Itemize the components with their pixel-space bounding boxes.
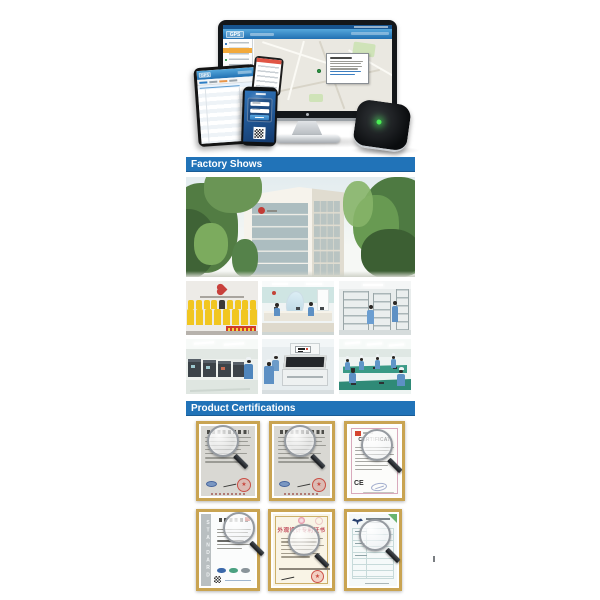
assembly-worker-front: [397, 367, 405, 386]
ce-mark: CE: [354, 480, 364, 487]
certificate-title-text: [280, 430, 324, 434]
production-machine: [233, 362, 244, 377]
testing-machine-lid: [284, 355, 327, 369]
office-wall-logo: [272, 291, 276, 295]
red-seal: ★: [237, 478, 251, 492]
testing-machine-body: [282, 369, 328, 386]
tree-bullet-blue: [225, 43, 227, 45]
certificate-test-report: [344, 509, 402, 591]
warehouse-worker: [367, 305, 374, 324]
certificate-title-text: [207, 430, 249, 434]
office-floor: [262, 332, 334, 335]
standard-band: STANDARD: [201, 514, 211, 586]
certificate-text-lines: [201, 437, 255, 463]
certificate-ce: CERTIFICAT CE: [344, 421, 405, 501]
gps-tracker: [352, 98, 412, 153]
tree-left-bright: [194, 223, 228, 265]
patent-title: 外观设计专利证书: [273, 526, 330, 534]
tablet-header-links: [238, 70, 252, 74]
certificate-iso: STANDARD: [196, 509, 260, 591]
footer-text: [211, 493, 246, 495]
photo-team: [186, 281, 258, 335]
certifier-name: [363, 432, 373, 434]
floor: [186, 331, 258, 335]
qr-code: [253, 127, 265, 139]
blue-stamp: [206, 481, 217, 487]
shelving-rack: [343, 291, 369, 331]
map-marker: [317, 69, 321, 73]
qr-code-small: [214, 576, 221, 583]
testing-floor: [262, 390, 334, 394]
company-logo-heart: [218, 285, 228, 295]
page: GPS: [0, 0, 600, 600]
certificate-registration-1: ★: [196, 421, 260, 501]
footer-line: [225, 580, 251, 581]
menu-bar: [250, 33, 274, 36]
building-windows-side: [314, 201, 340, 275]
photo-machines: [186, 339, 258, 394]
report-table: [352, 528, 394, 579]
production-machine: [188, 359, 201, 377]
tree-right-light: [343, 181, 373, 227]
testing-operator: [264, 359, 274, 384]
photo-assembly: [339, 339, 411, 394]
section-title-certifications: Product Certifications: [191, 403, 295, 414]
report-title: [366, 518, 390, 520]
certificate-text-lines: [274, 437, 330, 463]
office-worker: [274, 303, 280, 316]
phone-login-form: [247, 98, 273, 123]
photo-testing: [262, 339, 334, 394]
assembly-worker: [391, 353, 396, 368]
certificate-registration-2: ★: [269, 421, 335, 501]
section-header-factory: Factory Shows: [186, 157, 415, 172]
photo-building: [186, 177, 415, 277]
testing-machine-top: [290, 343, 320, 355]
pink-ring: [315, 517, 323, 525]
username-field: [250, 102, 269, 107]
desk-monitor: [296, 307, 300, 310]
section-title-factory: Factory Shows: [191, 159, 262, 170]
blue-stamp: [279, 481, 290, 487]
accreditation-logos: [217, 568, 250, 574]
certificate-design-patent: 外观设计专利证书 ★: [268, 509, 335, 591]
notice-block: [279, 568, 330, 571]
desk-monitor: [320, 307, 324, 310]
shelving-rack: [373, 293, 391, 331]
machines-floor: [186, 380, 258, 394]
gps-logo: GPS: [226, 31, 244, 38]
certificate-text-lines: [277, 535, 326, 560]
section-header-certifications: Product Certifications: [186, 401, 415, 416]
footer-line: [365, 583, 389, 584]
phone-screen: [243, 90, 276, 142]
gps-logo-tablet: GPS: [199, 72, 211, 78]
eagle-emblem: [352, 517, 363, 525]
photo-office: [262, 281, 334, 335]
assembly-worker: [359, 355, 364, 370]
red-seal: ★: [311, 570, 324, 583]
building-logo: [258, 207, 265, 214]
ce-certificate-title: CERTIFICAT: [349, 437, 400, 443]
header-links: [351, 32, 389, 35]
certifier-logo: [355, 431, 361, 436]
production-machine: [203, 360, 216, 377]
certificate-text-lines: [213, 526, 252, 552]
photo-warehouse: [339, 281, 411, 335]
tracker-led: [376, 119, 382, 125]
monitor-stand-base: [276, 135, 340, 143]
monitor-brand-logo: [306, 113, 309, 116]
machine-operator: [244, 357, 253, 379]
warehouse-worker: [392, 301, 398, 322]
report-subtitle: [366, 522, 384, 523]
ground-line: [186, 271, 415, 277]
selected-tree-item: [223, 48, 252, 53]
device-collage: GPS: [0, 0, 600, 156]
tree-right-dark: [361, 229, 415, 277]
red-mark: [245, 517, 250, 521]
stray-mark: [433, 556, 435, 562]
login-button: [250, 115, 269, 120]
password-field: [250, 109, 269, 114]
team-front-row: [187, 308, 257, 325]
assembly-worker: [345, 356, 350, 370]
map-info-popup: [326, 53, 369, 83]
background-phone-header: [256, 58, 281, 65]
red-seal: ★: [312, 478, 326, 492]
assembly-worker-front: [349, 369, 356, 383]
monitor-app-header: GPS: [223, 29, 392, 39]
phone-title-bar: [255, 93, 265, 95]
company-name-text: [200, 296, 244, 298]
flower-emblem: [298, 517, 305, 524]
production-machine: [218, 361, 231, 377]
assembly-worker: [375, 354, 380, 369]
office-worker: [308, 302, 314, 316]
office-desk-front: [262, 323, 334, 332]
certificate-text-lines: [351, 444, 398, 472]
building-logo-text: [267, 210, 277, 212]
smartphone: [241, 86, 278, 146]
tree-bullet-green: [225, 59, 227, 61]
signature: [297, 481, 311, 488]
warehouse-floor: [339, 330, 411, 335]
footer-text: [284, 493, 320, 495]
signature: [223, 481, 237, 488]
